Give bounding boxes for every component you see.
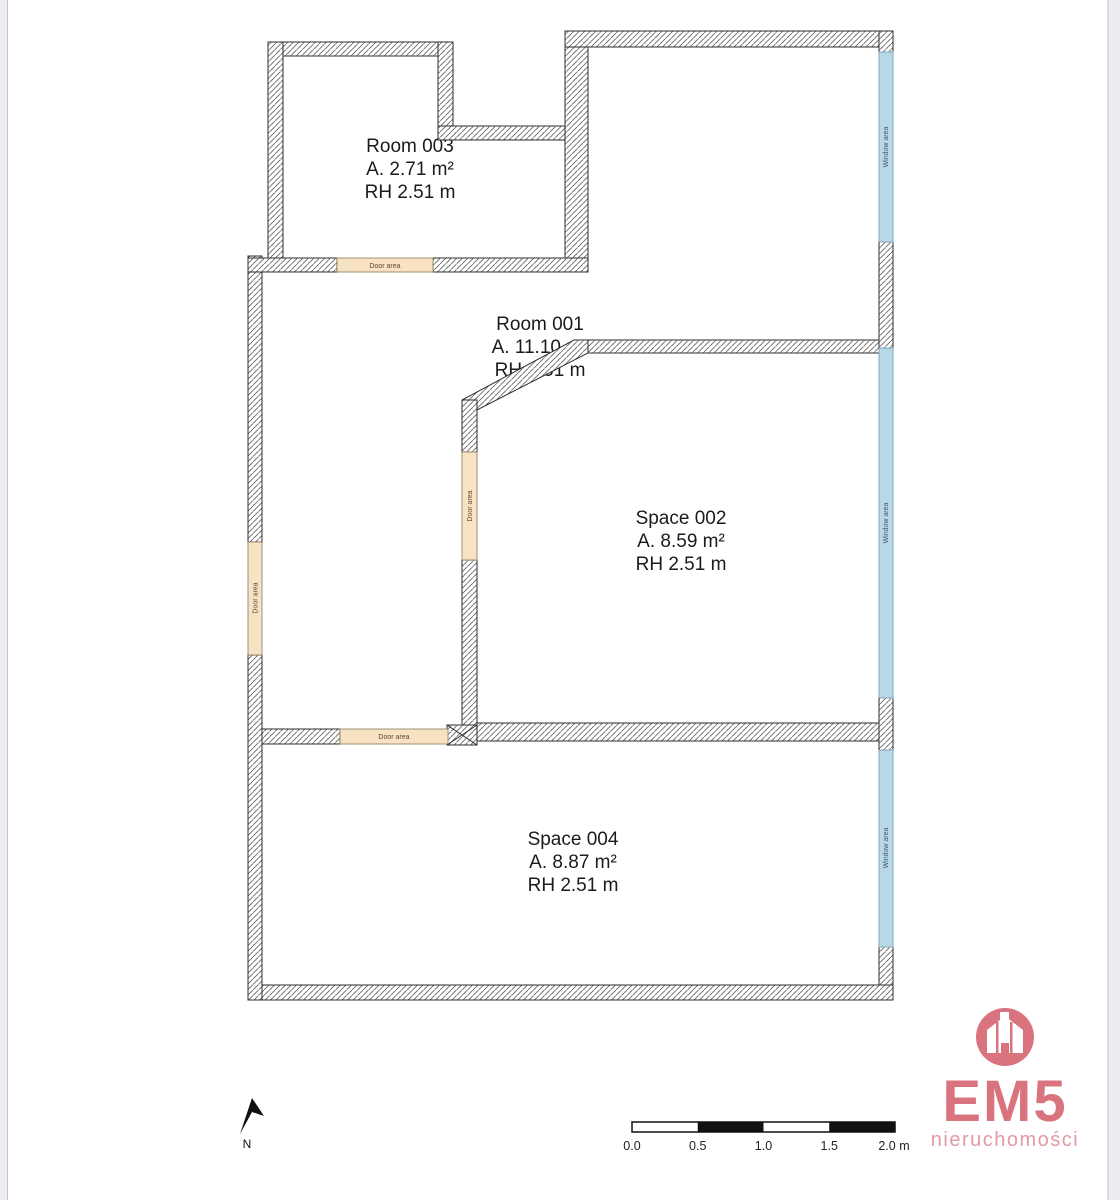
space-004-name: Space 004 [528,829,619,850]
wall-bottom-divider-right [477,723,879,741]
wall-divider-room001-space002 [584,340,879,353]
scale-tick-3: 1.5 [821,1139,838,1153]
north-indicator: N [240,1098,264,1151]
scale-tick-0: 0.0 [623,1139,640,1153]
windows [879,52,893,947]
window-middle-label: Window area [883,502,890,543]
window-top-label: Window area [883,126,890,167]
door-space004-label: Door area [378,734,409,741]
space-004-height: RH 2.51 m [528,875,619,896]
wall-notch-vertical [438,42,453,140]
wall-right-upper-pier [879,242,893,348]
page-edge-strips [0,0,1120,1200]
wall-top-right-top [565,31,893,47]
scale-bar-ticks: 0.0 0.5 1.0 1.5 2.0 m [623,1139,909,1153]
wall-room003-bottom-left [248,258,337,272]
wall-right-top-corner [879,31,893,52]
wall-room003-left [268,42,283,272]
scale-tick-1: 0.5 [689,1139,706,1153]
space-002-name: Space 002 [636,508,727,529]
door-divider-label: Door area [467,490,474,521]
space-002-height: RH 2.51 m [636,554,727,575]
wall-right-mid-pier [879,698,893,750]
scale-bar-segment-1 [698,1122,764,1132]
logo-subtitle: nieruchomości [931,1129,1079,1151]
space-004-label: Space 004 A. 8.87 m² RH 2.51 m [528,829,619,896]
space-002-area: A. 8.59 m² [637,531,725,552]
floor-plan-page: Room 003 A. 2.71 m² RH 2.51 m Room 001 A… [0,0,1120,1200]
room-labels: Room 003 A. 2.71 m² RH 2.51 m Room 001 A… [365,136,727,896]
doors [248,258,477,744]
left-edge-strip [0,0,7,1200]
space-004-area: A. 8.87 m² [529,852,617,873]
north-letter: N [243,1137,252,1151]
wall-room003-top [268,42,453,56]
north-arrow-icon [240,1098,264,1134]
logo-title: EM5 [942,1069,1067,1134]
floor-plan-canvas: Room 003 A. 2.71 m² RH 2.51 m Room 001 A… [0,0,1120,1200]
window-bottom-label: Window area [883,827,890,868]
room-003-label: Room 003 A. 2.71 m² RH 2.51 m [365,136,456,203]
space-002-label: Space 002 A. 8.59 m² RH 2.51 m [636,508,727,575]
door-room003-label: Door area [369,263,400,270]
wall-vertical-divider-upper [462,400,477,452]
room-001-name: Room 001 [496,314,584,335]
scale-bar-segment-2 [829,1122,895,1132]
scale-bar: 0.0 0.5 1.0 1.5 2.0 m [623,1122,909,1153]
scale-tick-2: 1.0 [755,1139,772,1153]
door-left-wall-label: Door area [253,582,260,613]
wall-vertical-divider-lower [462,560,477,725]
wall-room003-right [565,31,588,272]
right-edge-strip [1108,0,1120,1200]
wall-bottom-divider-left [256,729,340,744]
wall-room003-bottom-right [433,258,588,272]
wall-left-lower [248,655,262,1000]
wall-bottom [248,985,893,1000]
scale-tick-4: 2.0 m [878,1139,909,1153]
door-labels: Door area Door area Door area Door area [253,263,475,741]
room-003-area: A. 2.71 m² [366,159,454,180]
room-003-height: RH 2.51 m [365,182,456,203]
wall-left-upper [248,256,262,542]
logo: EM5 nieruchomości [931,1008,1079,1151]
